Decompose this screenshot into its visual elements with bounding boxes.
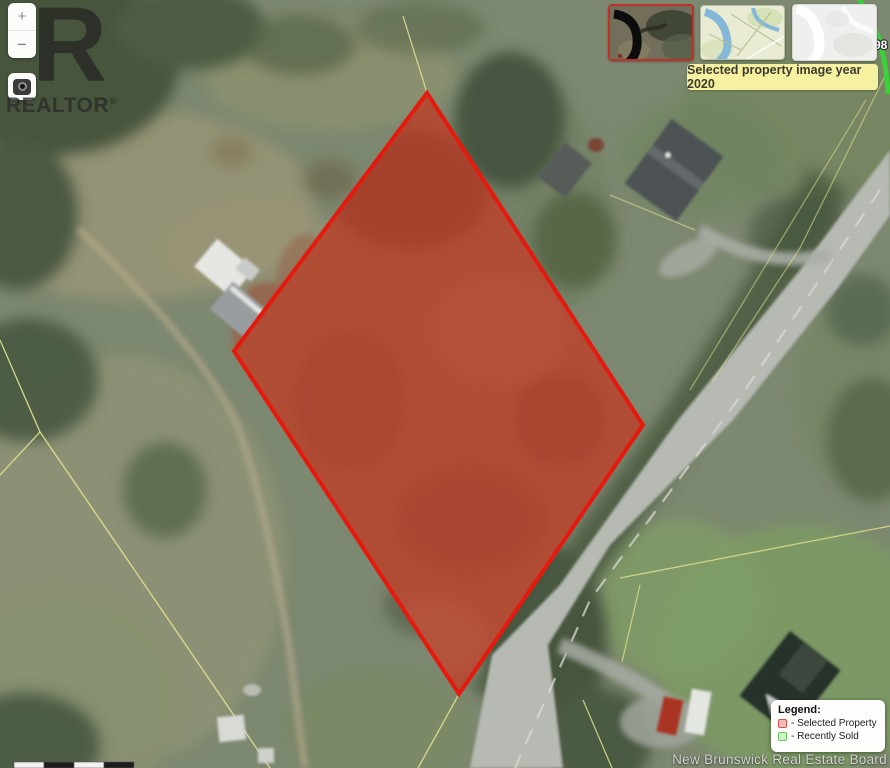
map-view: 98 + − R REALTOR®: [0, 0, 890, 768]
zoom-out-button[interactable]: −: [8, 30, 36, 58]
zoom-control: + −: [8, 3, 36, 58]
image-year-banner: Selected property image year 2020: [687, 64, 878, 90]
legend-title: Legend:: [778, 704, 879, 716]
map-canvas[interactable]: 98: [0, 0, 890, 768]
legend-item-sold: - Recently Sold: [778, 730, 879, 743]
legend: Legend: - Selected Property - Recently S…: [771, 700, 885, 752]
layer-thumbnail-light-basemap[interactable]: [792, 4, 877, 61]
legend-item-selected: - Selected Property: [778, 717, 879, 730]
layer-thumbnail-street-map[interactable]: [700, 5, 785, 60]
layer-thumbnail-aerial-selected[interactable]: [608, 4, 694, 61]
recently-sold-swatch: [778, 732, 787, 741]
camera-icon: [13, 79, 31, 95]
streetview-button[interactable]: [8, 73, 36, 100]
zoom-in-button[interactable]: +: [8, 3, 36, 30]
scale-bar: [14, 762, 134, 768]
selected-property-swatch: [778, 719, 787, 728]
